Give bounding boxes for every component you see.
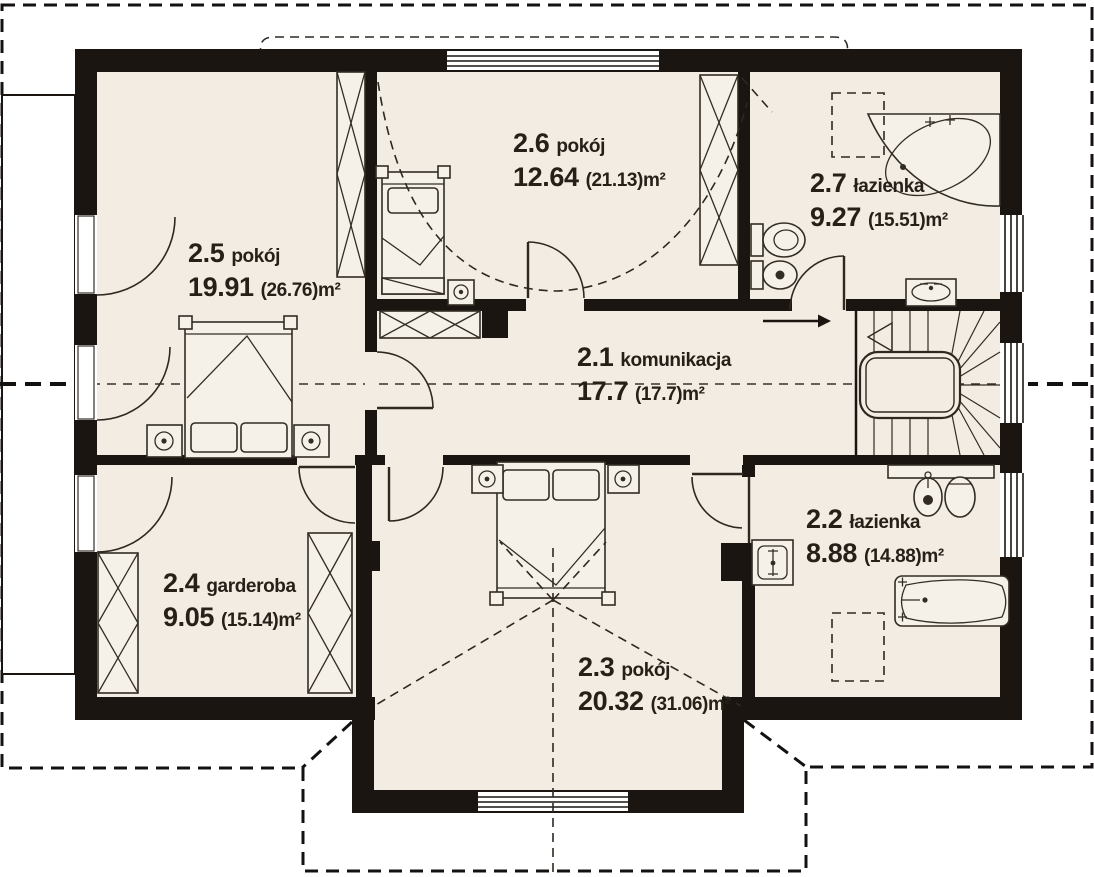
wardrobe-2-4-right [308,533,352,693]
wardrobe-2-5 [337,72,365,277]
cistern-shelf-2-2 [888,465,994,478]
room-area-total: (31.06)m² [651,694,731,715]
washbasin-2-7 [906,279,956,306]
room-area-total: (26.76)m² [261,280,341,301]
room-area-total: (21.13)m² [586,170,666,191]
nightstand-2-6 [448,280,474,305]
chimney-block [482,311,508,338]
room-id: 2.2 [806,504,842,534]
room-area-total: (14.88)m² [864,546,944,567]
window-right-1 [1000,215,1028,292]
room-name: pokój [231,246,280,267]
window-top [447,51,659,70]
room-area: 8.88 [806,538,857,568]
room-area-total: (17.7)m² [635,384,705,405]
toilet-2-2 [945,477,975,517]
room-name: łazienka [853,176,925,197]
toilet-2-7 [751,223,805,257]
chimney-block [721,543,745,581]
room-area: 12.64 [513,162,579,192]
room-area: 20.32 [578,686,644,716]
room-name: łazienka [849,512,921,533]
room-area: 9.27 [810,202,861,232]
nightstand-2-5-right [294,425,329,457]
single-bed-2-6 [376,166,450,294]
room-area: 9.05 [163,602,214,632]
floor-plan-page: 2.5pokój 19.91(26.76)m² 2.6pokój 12.64(2… [0,0,1094,877]
window-right-2 [1000,343,1028,423]
room-id: 2.5 [188,238,225,268]
room-area-total: (15.14)m² [221,610,301,631]
room-name: garderoba [206,576,296,597]
room-id: 2.6 [513,128,550,158]
washbasin-2-2 [752,540,793,585]
room-area: 19.91 [188,272,254,302]
wardrobe-2-6 [700,75,738,265]
bathtub-2-2 [895,576,1009,626]
room-name: komunikacja [620,350,732,371]
nightstand-2-3-right [608,465,639,493]
room-name: pokój [556,136,605,157]
door-room-2-2 [742,477,755,543]
dresser-corridor [380,311,480,338]
bidet-2-7 [751,261,797,289]
room-id: 2.7 [810,168,846,198]
nightstand-2-3-left [472,465,503,493]
room-area: 17.7 [577,376,628,406]
wardrobe-2-4-left [98,553,138,693]
nightstand-2-5-left [147,425,182,457]
double-bed-2-5 [179,316,297,458]
room-id: 2.4 [163,568,200,598]
floor-plan-drawing: 2.5pokój 19.91(26.76)m² 2.6pokój 12.64(2… [0,0,1094,877]
room-name: pokój [621,660,670,681]
chimney-block [362,541,380,571]
stair-handrail [860,352,960,418]
window-right-3 [1000,473,1028,557]
room-id: 2.1 [577,342,614,372]
room-id: 2.3 [578,652,615,682]
room-area-total: (15.51)m² [868,210,948,231]
